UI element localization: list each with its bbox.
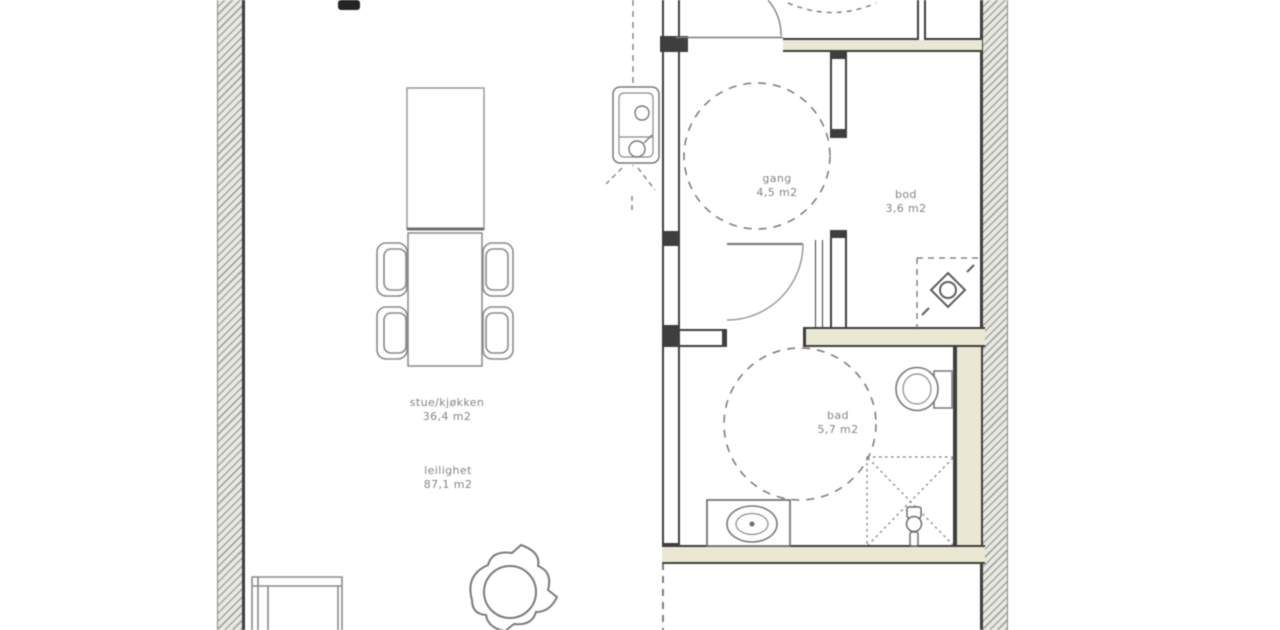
room-label-bod: bod 3,6 m2 [885, 188, 926, 216]
door-arc-top-room [768, 0, 781, 36]
room-label-leilighet: leilighet 87,1 m2 [424, 464, 473, 492]
sofa-cabinet [252, 577, 342, 630]
door-arc-bad [727, 244, 803, 320]
dashed-hood-symbol [606, 168, 655, 190]
room-label-bad: bad 5,7 m2 [817, 409, 858, 437]
room-area: 4,5 m2 [756, 186, 797, 200]
room-name: bod [885, 188, 926, 202]
dining-table [408, 233, 482, 366]
room-name: stue/kjøkken [410, 396, 485, 410]
kitchen-island [407, 88, 484, 229]
room-area: 36,4 m2 [410, 410, 485, 424]
room-label-stue-kjokken: stue/kjøkken 36,4 m2 [410, 396, 485, 424]
floor-plan-drawing: stue/kjøkken 36,4 m2 leilighet 87,1 m2 g… [0, 0, 1280, 630]
room-name: gang [756, 172, 797, 186]
kitchen-appliance [613, 87, 659, 163]
room-area: 3,6 m2 [885, 202, 926, 216]
room-name: leilighet [424, 464, 473, 478]
dashed-zone-bod [917, 258, 978, 328]
room-area: 5,7 m2 [817, 423, 858, 437]
toilet-icon [896, 368, 952, 411]
sink-vanity-icon [707, 500, 790, 546]
column-cap [338, 0, 360, 10]
floor-drain-icon [922, 265, 974, 315]
room-name: bad [817, 409, 858, 423]
turning-circle-gang [684, 83, 830, 229]
plant-icon [470, 545, 557, 630]
room-label-gang: gang 4,5 m2 [756, 172, 797, 200]
door-arc-dashed-top [788, 3, 876, 13]
chair-left-top [377, 243, 407, 296]
floor-plan: stue/kjøkken 36,4 m2 leilighet 87,1 m2 g… [0, 0, 1280, 630]
plan-linework [0, 0, 1280, 630]
shower-mixer-icon [907, 507, 922, 546]
room-area: 87,1 m2 [424, 478, 473, 492]
